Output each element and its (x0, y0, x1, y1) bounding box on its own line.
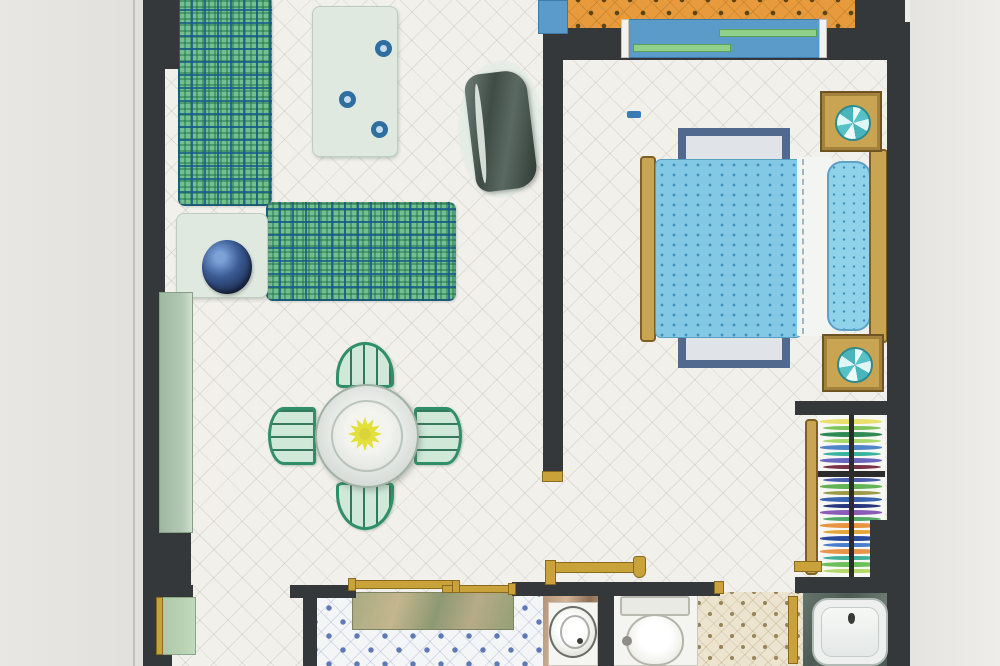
window-frame-bar (719, 29, 817, 37)
bathtub-faucet-icon (848, 613, 855, 624)
bedroom-switch-mark (627, 111, 641, 118)
door-joint (348, 578, 356, 591)
floor-plan-photo (0, 0, 1000, 666)
bed-mattress (655, 159, 802, 338)
lamp-icon (837, 347, 873, 383)
cup-icon (375, 40, 392, 57)
closet-door-panel (805, 419, 818, 575)
wall-closet-top (795, 401, 890, 415)
photo-crease-line (133, 0, 135, 666)
bathtub (812, 598, 888, 666)
window-frame-bar (633, 44, 731, 52)
window-cap (819, 19, 827, 58)
lamp-icon (835, 105, 871, 141)
cup-icon (339, 91, 356, 108)
wall-kitchen-top (290, 585, 356, 598)
wall-living-bedroom (543, 33, 563, 477)
bed-headboard (869, 149, 888, 343)
wall-end-cap (542, 471, 563, 482)
toilet-tank (620, 596, 690, 616)
washbasin (549, 606, 597, 658)
window-cap (621, 19, 629, 58)
dining-chair-east (414, 407, 462, 465)
door-joint (452, 580, 460, 593)
wall-closet-notch (870, 520, 892, 580)
wall-bath-top (512, 582, 720, 596)
coffee-table (312, 6, 398, 157)
sofa-vertical (178, 0, 272, 206)
photo-margin-right (910, 0, 1000, 666)
bedroom-door-handle (633, 556, 646, 578)
balcony-planter (538, 0, 568, 34)
plant-pot (202, 240, 252, 294)
cup-icon (371, 121, 388, 138)
wall-left-pillar (143, 0, 179, 69)
sofa-horizontal (266, 202, 456, 301)
bedroom-window (628, 19, 820, 58)
bed-pillow (827, 161, 871, 331)
bedroom-door-leaf (553, 562, 639, 573)
wall-kitchen-left (303, 592, 317, 666)
nightstand-bottom (822, 334, 884, 392)
toilet-bowl (626, 614, 684, 666)
bathroom-door-leaf (788, 596, 798, 664)
closet-shelf-divider (817, 471, 885, 477)
bath-wall-cap (714, 581, 724, 594)
left-door-track (156, 597, 163, 655)
bathroom-door-top (794, 561, 822, 572)
bedroom-door-hinge (545, 560, 556, 585)
left-window-sideboard (159, 292, 193, 533)
wall-left-post (157, 533, 191, 587)
nightstand-top (820, 91, 882, 152)
dining-chair-west (268, 407, 316, 465)
closet-rail-vertical (849, 415, 854, 577)
door-joint (508, 583, 516, 595)
bed-footboard (640, 156, 656, 342)
photo-margin-left (0, 0, 143, 666)
wall-basin-stub (598, 594, 614, 666)
kitchen-counter (352, 592, 514, 630)
flower-centerpiece-icon (347, 416, 383, 452)
